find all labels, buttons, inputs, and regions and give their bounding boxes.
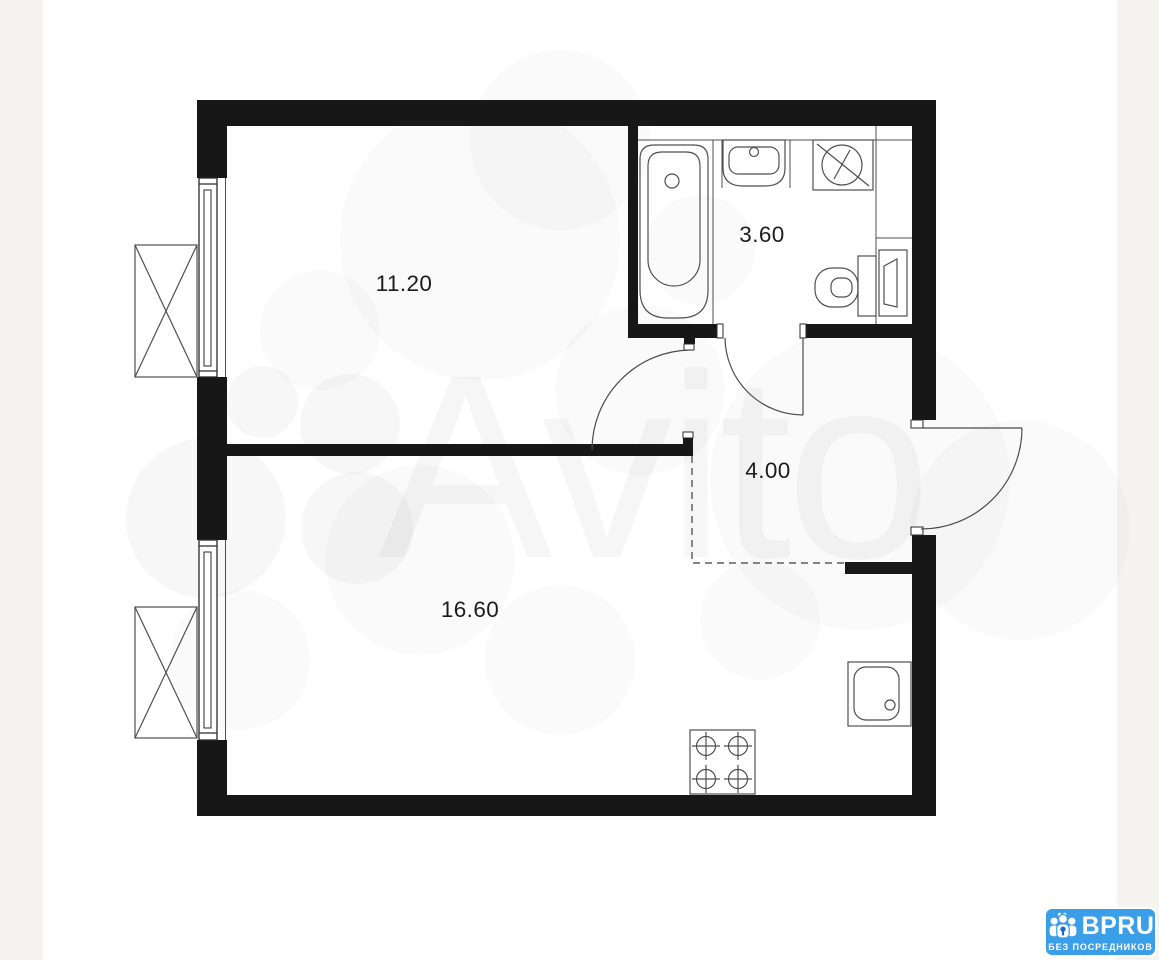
wall-top — [197, 100, 936, 126]
wall-stub-bedroom-door — [684, 338, 695, 344]
bpru-badge: BPRU БЕЗ ПОСРЕДНИКОВ — [1044, 907, 1157, 957]
wall-left-pier-top — [197, 100, 227, 178]
room-area-label-16-60: 16.60 — [441, 597, 499, 623]
wall-middle-partition — [225, 444, 683, 456]
walls — [197, 100, 936, 816]
wall-bottom — [197, 795, 936, 816]
window-icon-bedroom — [199, 178, 217, 377]
stove-icon — [690, 730, 755, 794]
toilet-icon — [815, 256, 876, 316]
wall-door-post — [683, 438, 693, 456]
wall-right-lower — [912, 535, 936, 816]
wall-bathroom-bottom-right — [806, 324, 912, 338]
wall-bathroom-bottom-left — [628, 324, 717, 338]
room-area-label-4-00: 4.00 — [745, 458, 790, 484]
people-lock-icon — [1047, 912, 1079, 941]
room-area-label-3-60: 3.60 — [739, 222, 784, 248]
water-heater-icon — [879, 250, 907, 316]
kitchen-sink-icon — [848, 662, 911, 726]
floor-plan-screenshot: Avito — [0, 0, 1159, 960]
washing-machine-icon — [813, 140, 873, 190]
bathtub-icon — [640, 145, 708, 318]
balcony-icon-bottom — [135, 607, 197, 738]
wall-left-pier-mid — [197, 377, 227, 540]
door-arc-bedroom — [592, 350, 690, 450]
badge-brand-text: BPRU — [1082, 914, 1155, 939]
wall-right-upper — [912, 100, 936, 420]
room-area-label-11-20: 11.20 — [376, 271, 433, 297]
window-icon-living — [199, 540, 217, 740]
wall-bathroom-left — [628, 126, 638, 338]
floor-plan — [0, 0, 1159, 960]
interior-lines — [226, 126, 913, 740]
wall-hall-stub — [845, 562, 912, 574]
balcony-icon-top — [135, 245, 197, 377]
door-arc-bathroom — [725, 338, 803, 415]
bathroom-sink-icon — [723, 140, 785, 186]
badge-subtitle-text: БЕЗ ПОСРЕДНИКОВ — [1048, 943, 1152, 952]
door-arc-entrance — [921, 428, 1022, 529]
